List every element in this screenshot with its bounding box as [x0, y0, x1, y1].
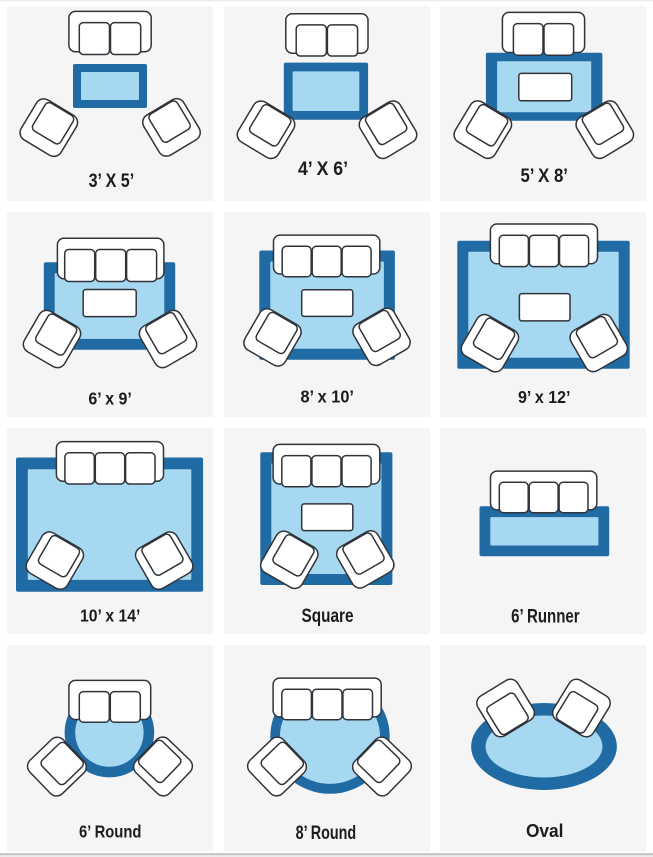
svg-text:10’ x 14’: 10’ x 14’	[80, 606, 140, 626]
svg-text:9’ x 12’: 9’ x 12’	[518, 387, 571, 407]
svg-text:8’ x 10’: 8’ x 10’	[300, 386, 354, 406]
svg-text:Oval: Oval	[526, 820, 564, 841]
svg-text:6’ Runner: 6’ Runner	[511, 606, 580, 628]
svg-text:6’ x 9’: 6’ x 9’	[88, 389, 132, 409]
svg-text:8’ Round: 8’ Round	[296, 822, 357, 844]
svg-text:4’ X 6’: 4’ X 6’	[298, 158, 348, 180]
svg-text:6’ Round: 6’ Round	[79, 821, 142, 841]
svg-text:3’ X 5’: 3’ X 5’	[89, 170, 135, 192]
svg-text:5’ X 8’: 5’ X 8’	[520, 165, 568, 187]
svg-text:Square: Square	[302, 605, 354, 627]
